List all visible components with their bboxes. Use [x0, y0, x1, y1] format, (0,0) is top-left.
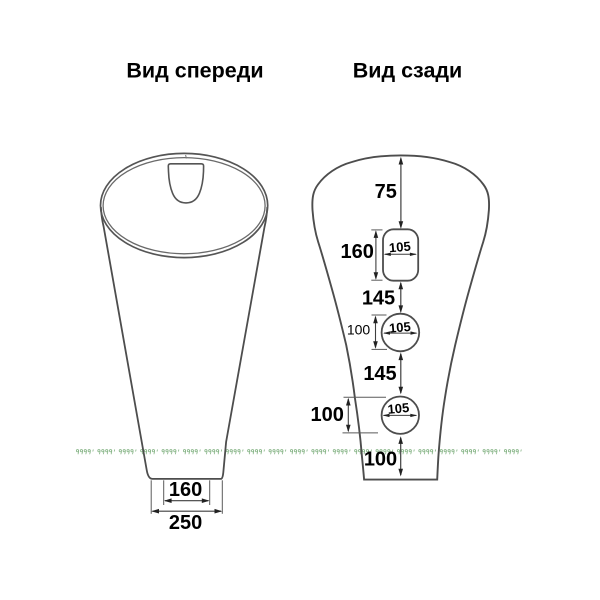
svg-text:75: 75 [375, 181, 397, 203]
svg-text:145: 145 [362, 287, 395, 309]
svg-text:100: 100 [347, 321, 371, 337]
svg-text:250: 250 [169, 512, 202, 534]
svg-text:Вид спереди: Вид спереди [126, 58, 263, 82]
svg-text:Вид сзади: Вид сзади [353, 58, 463, 82]
svg-text:145: 145 [363, 363, 396, 385]
svg-text:100: 100 [311, 404, 344, 426]
svg-text:105: 105 [388, 239, 411, 256]
svg-text:160: 160 [341, 241, 374, 263]
svg-text:100: 100 [364, 449, 397, 471]
svg-text:160: 160 [169, 479, 202, 501]
svg-text:105: 105 [387, 400, 410, 417]
